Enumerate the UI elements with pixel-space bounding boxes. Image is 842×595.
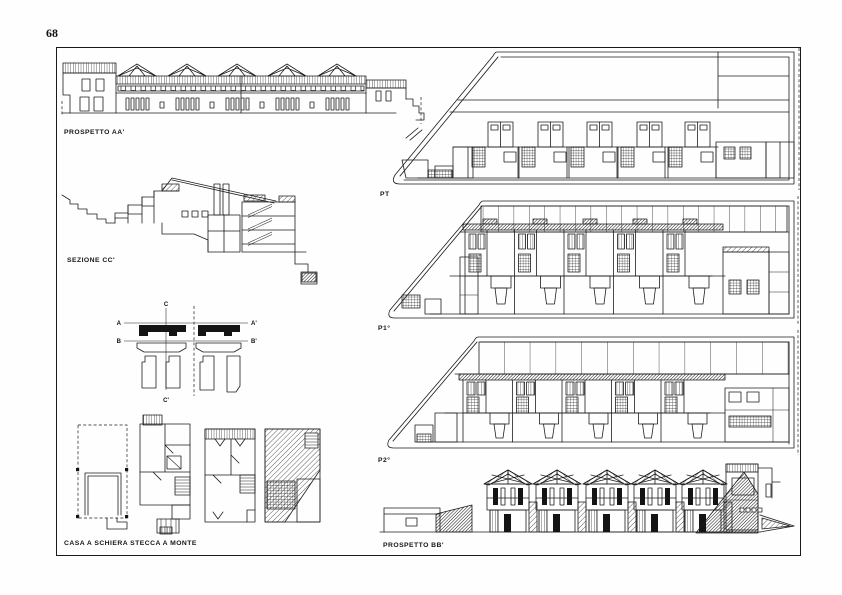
prospetto-aa-label: PROSPETTO AA' — [64, 129, 125, 136]
building-mass-left — [139, 325, 186, 336]
casa-plans-drawing — [76, 415, 320, 534]
p1-plan-drawing — [389, 196, 798, 324]
sezione-cc-drawing — [62, 178, 317, 284]
prospetto-bb-label: PROSPETTO BB' — [383, 542, 444, 549]
pt-plan-drawing — [393, 48, 799, 190]
marker-b-prime: B' — [251, 339, 257, 345]
marker-a-prime: A' — [251, 321, 257, 327]
marker-c-prime: C' — [163, 398, 169, 404]
drawings-canvas: C C' A A' B B' — [0, 0, 842, 595]
building-mass-right — [198, 325, 240, 336]
marker-b: B — [117, 339, 122, 345]
p2-plan-drawing — [388, 330, 798, 455]
sezione-cc-label: SEZIONE CC' — [67, 257, 115, 264]
scanned-page: 68 — [0, 0, 842, 595]
casa-schiera-label: CASA A SCHIERA STECCA A MONTE — [64, 540, 197, 547]
key-plan-drawing: C C' A A' B B' — [117, 302, 258, 404]
marker-a: A — [117, 321, 122, 327]
p2-label: P2° — [378, 457, 390, 464]
p1-label: P1° — [378, 325, 390, 332]
prospetto-bb-drawing — [380, 464, 794, 533]
pt-label: PT — [380, 191, 390, 198]
marker-c: C — [164, 302, 169, 308]
